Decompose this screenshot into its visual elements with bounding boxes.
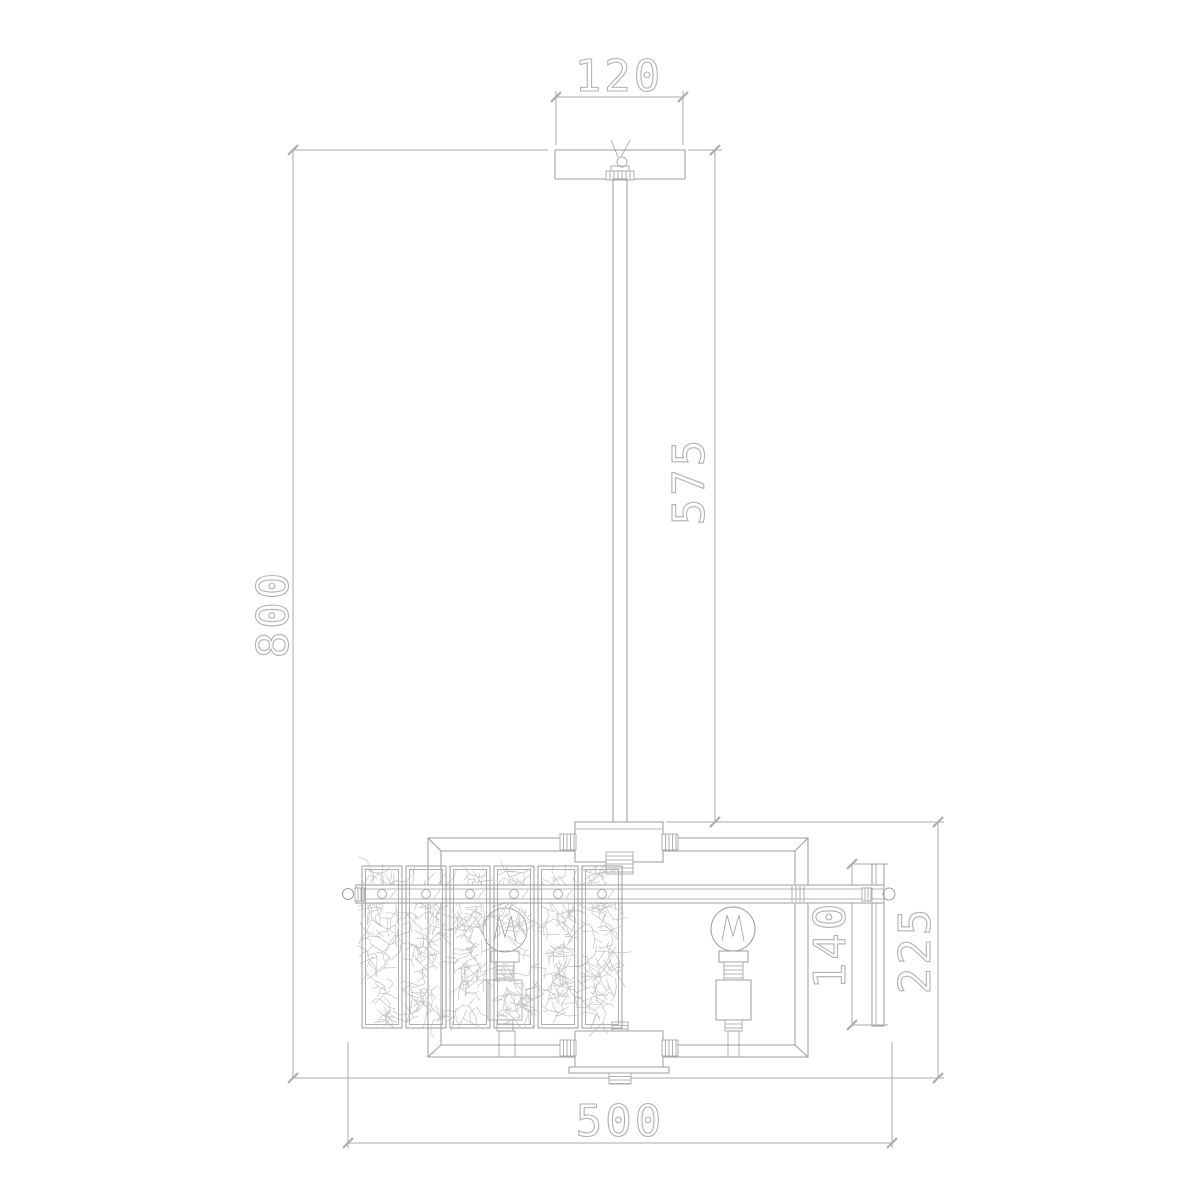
bar-end-nut-left [355, 888, 365, 901]
socket-threads [724, 962, 743, 980]
hatch-box [606, 852, 633, 874]
mounting-hook-icon [606, 140, 634, 180]
bulb-glass [711, 907, 755, 951]
bar-end-nut-right [862, 888, 872, 901]
hatch-box [496, 962, 514, 980]
hook-ring [617, 157, 627, 167]
dim-body-height: 225 [890, 817, 943, 1083]
tube-stub [725, 1020, 742, 1031]
dim-label-800: 800 [248, 570, 299, 658]
threaded-stub-bottom [606, 852, 633, 874]
right-bulb [711, 907, 755, 1057]
socket-neck [491, 951, 519, 962]
suspension-rod [613, 179, 627, 822]
bottom-hub [560, 1022, 678, 1084]
hub-flange [569, 1067, 669, 1073]
hatch-box [355, 888, 365, 901]
hatch-box [725, 1020, 742, 1031]
bar-end-knob-left [343, 889, 354, 900]
hatch-box [724, 962, 743, 980]
dim-label-225: 225 [890, 906, 941, 994]
threaded-nipple-left [560, 834, 576, 850]
candle-tube [716, 980, 751, 1020]
support-column [499, 1031, 515, 1057]
ceiling-canopy [555, 140, 685, 180]
hook-wire [611, 140, 630, 157]
technical-drawing-page: 120 800 575 225 [0, 0, 1200, 1200]
hub-body [575, 1031, 663, 1067]
dim-label-575: 575 [664, 437, 715, 525]
dim-label-500: 500 [576, 1096, 664, 1147]
bar-body [356, 885, 884, 903]
tube-stub [497, 1020, 513, 1031]
threaded-nipple-left [560, 1040, 576, 1056]
hatch-box [862, 888, 872, 901]
dim-label-140: 140 [805, 901, 856, 989]
threaded-nipple-right [662, 1040, 678, 1056]
socket-threads [496, 962, 514, 980]
dim-rod-length: 575 [664, 145, 944, 827]
threaded-nipple-right [662, 834, 678, 850]
dim-label-120: 120 [575, 51, 663, 102]
bar-end-knob-right [883, 888, 895, 900]
dim-canopy-width: 120 [551, 51, 688, 145]
socket-neck [719, 951, 748, 962]
hatch-box [497, 1020, 513, 1031]
threaded-stub-bottom [609, 1073, 631, 1084]
hatch-box [609, 1073, 631, 1084]
pendant-lamp-technical-drawing: 120 800 575 225 [0, 0, 1200, 1200]
drop-wire [728, 1031, 739, 1057]
bulb-filament-icon [722, 915, 744, 941]
